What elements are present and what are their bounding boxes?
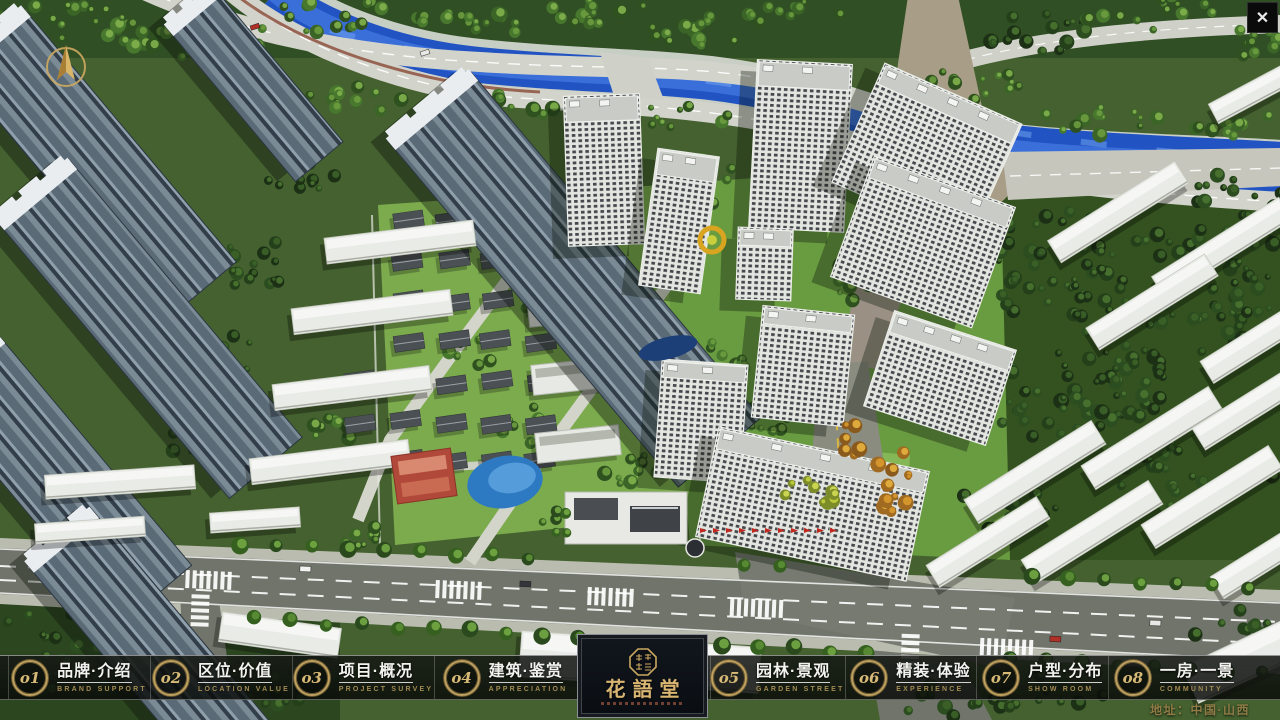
menu-title: 户型·分布	[1028, 663, 1102, 683]
menu-title: 园林·景观	[756, 663, 830, 683]
presentation-window: ✕ o1 品牌·介绍 BRAND SUPPORT o2 区位·价值 LOCATI…	[0, 0, 1280, 720]
menu-number-badge: o5	[711, 660, 747, 696]
menu-number-badge: o3	[294, 660, 330, 696]
menu-subtitle: COMMUNITY	[1160, 686, 1223, 693]
menu-item-interior[interactable]: o6 精装·体验 EXPERIENCE	[845, 656, 977, 699]
logo-tagline	[601, 702, 685, 705]
close-icon: ✕	[1256, 8, 1269, 28]
menu-spacer	[1240, 656, 1280, 699]
menu-item-floorplan[interactable]: o7 户型·分布 SHOW ROOM	[976, 656, 1108, 699]
masterplan-render	[0, 0, 1280, 720]
logo-seal-icon	[629, 648, 657, 676]
close-button[interactable]: ✕	[1247, 2, 1278, 33]
menu-title: 精装·体验	[896, 663, 970, 683]
menu-number-badge: o2	[153, 660, 189, 696]
menu-title: 区位·价值	[198, 663, 272, 683]
menu-item-architecture[interactable]: o4 建筑·鉴赏 APPRECIATION	[434, 656, 576, 699]
menu-subtitle: EXPERIENCE	[896, 686, 963, 693]
menu-subtitle: SHOW ROOM	[1028, 686, 1093, 693]
menu-number-badge: o1	[12, 660, 48, 696]
menu-item-project[interactable]: o3 项目·概况 PROJECT SURVEY	[292, 656, 434, 699]
menu-subtitle: LOCATION VALUE	[198, 686, 290, 693]
menu-group-left: o1 品牌·介绍 BRAND SUPPORT o2 区位·价值 LOCATION…	[8, 656, 576, 699]
address-text: 地址：中国·山西	[1150, 701, 1250, 718]
logo-name: 花語堂	[599, 678, 687, 700]
menu-item-location[interactable]: o2 区位·价值 LOCATION VALUE	[150, 656, 292, 699]
project-logo[interactable]: 花語堂	[577, 634, 708, 718]
menu-subtitle: APPRECIATION	[489, 686, 568, 693]
menu-title: 建筑·鉴赏	[489, 663, 563, 683]
menu-subtitle: GARDEN STREET	[756, 686, 845, 693]
menu-number-badge: o8	[1115, 660, 1151, 696]
menu-item-garden[interactable]: o5 园林·景观 GARDEN STREET	[710, 656, 845, 699]
menu-number-badge: o7	[983, 660, 1019, 696]
menu-number-badge: o4	[444, 660, 480, 696]
menu-subtitle: PROJECT SURVEY	[339, 686, 433, 693]
project-logo-panel: 花語堂	[581, 638, 704, 714]
menu-number-badge: o6	[851, 660, 887, 696]
menu-subtitle: BRAND SUPPORT	[57, 686, 147, 693]
menu-title: 项目·概况	[339, 663, 413, 683]
menu-item-views[interactable]: o8 一房·一景 COMMUNITY	[1108, 656, 1240, 699]
menu-group-right: o5 园林·景观 GARDEN STREET o6 精装·体验 EXPERIEN…	[710, 656, 1280, 699]
menu-title: 品牌·介绍	[57, 663, 131, 683]
kindergarten	[391, 448, 457, 504]
menu-item-brand[interactable]: o1 品牌·介绍 BRAND SUPPORT	[8, 656, 150, 699]
compass-icon	[42, 42, 90, 90]
menu-title: 一房·一景	[1160, 663, 1234, 683]
